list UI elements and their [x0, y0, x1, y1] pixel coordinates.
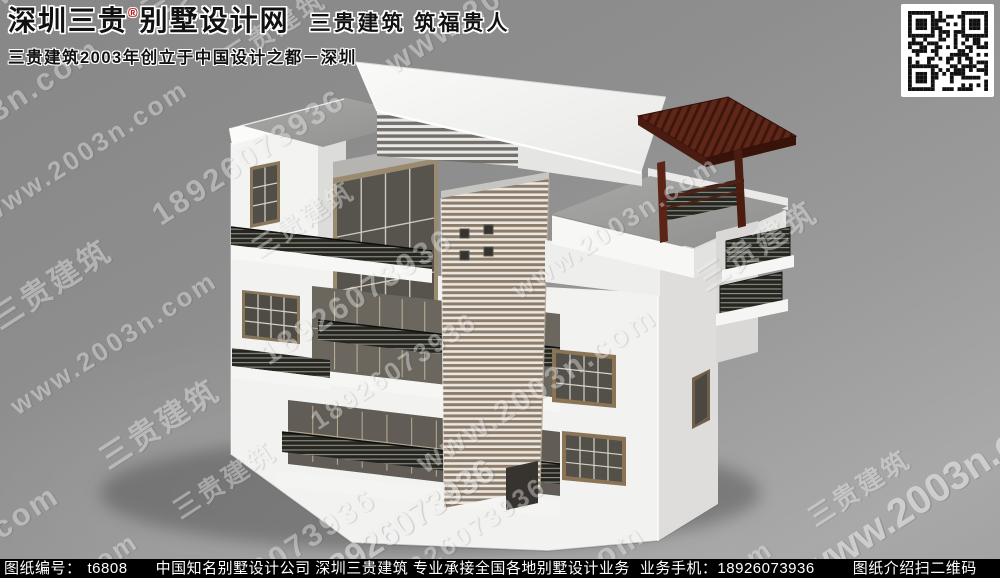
- qr-code-icon: [908, 11, 988, 91]
- site-title: 深圳三贵®别墅设计网三贵建筑 筑福贵人: [8, 4, 510, 41]
- drawing-number-label: 图纸编号：: [4, 559, 82, 578]
- phone-group: 业务手机：18926073936: [640, 559, 815, 578]
- qr-scan-hint: 图纸介绍扫二维码: [853, 559, 977, 578]
- qr-code: [901, 4, 994, 97]
- registered-trademark-mark: ®: [128, 5, 140, 20]
- promo-image: 18926073936 www.2003n.com 三贵建筑 189260739…: [0, 0, 1000, 578]
- site-header: 深圳三贵®别墅设计网三贵建筑 筑福贵人 三贵建筑2003年创立于中国设计之都－深…: [8, 4, 510, 68]
- footer-info-bar: 图纸编号： t6808 中国知名别墅设计公司 深圳三贵建筑 专业承接全国各地别墅…: [0, 559, 1000, 578]
- site-subtitle: 三贵建筑2003年创立于中国设计之都－深圳: [8, 44, 510, 68]
- site-title-prefix: 深圳三贵: [8, 5, 128, 36]
- site-title-suffix: 别墅设计网: [140, 5, 290, 36]
- slat-tower: [441, 172, 549, 510]
- phone-label: 业务手机：: [640, 560, 718, 577]
- front-window-lower: [562, 431, 626, 486]
- phone-number: 18926073936: [717, 560, 814, 577]
- villa-3d-render: [0, 0, 1000, 578]
- site-tagline: 三贵建筑 筑福贵人: [310, 12, 511, 35]
- drawing-number-value: t6808: [88, 559, 128, 578]
- side-balconies: [716, 221, 794, 363]
- company-line: 中国知名别墅设计公司 深圳三贵建筑 专业承接全国各地别墅设计业务: [156, 559, 630, 578]
- front-window-upper: [552, 349, 616, 408]
